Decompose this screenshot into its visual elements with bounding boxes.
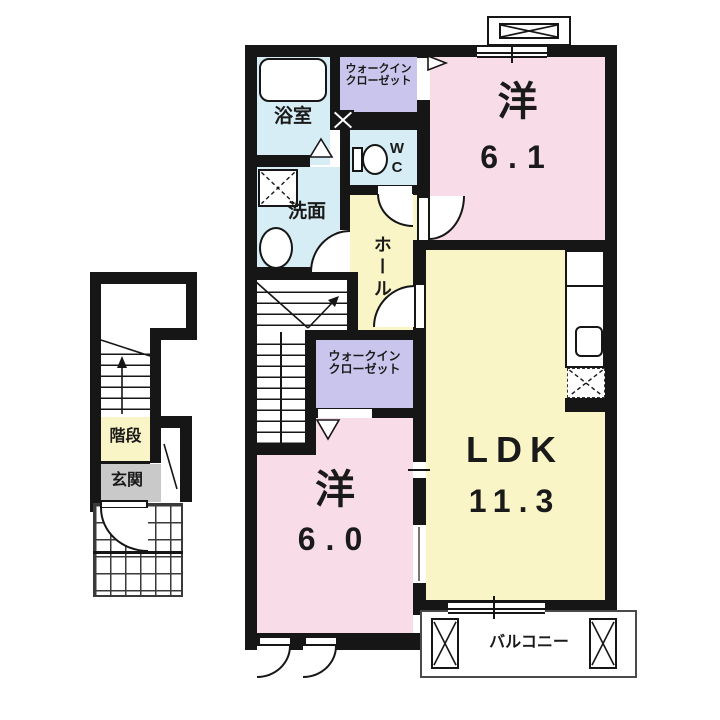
wic-mid-label: ウォークイン クローゼット (316, 350, 413, 376)
wash-basin (259, 227, 293, 269)
wall-wic-mid-top (305, 330, 417, 340)
ldk-balcony-window-tick (493, 596, 495, 619)
wall-bedroom1-bottom (417, 240, 617, 250)
ldk-door-leaf (414, 283, 426, 330)
stairs-direction-arrow (255, 278, 347, 338)
bath-door-icon (308, 137, 334, 159)
stairwell-wall-left (90, 272, 101, 512)
refrigerator-space (567, 368, 605, 398)
ldk-label: LDK (425, 430, 605, 470)
wall-right (605, 45, 617, 615)
wall-hall-stairs (347, 272, 358, 338)
stairwell-wall-top (90, 272, 197, 284)
wic-mid-door-icon (315, 418, 341, 442)
bedroom2-ldk-slider-panel (418, 527, 420, 581)
wc-label: WC (388, 134, 405, 184)
bath-label: 浴室 (260, 107, 326, 128)
bedroom2-window-arc-2 (303, 646, 337, 678)
porch-step-line (93, 551, 183, 554)
wic-top-label-line2: クローゼット (340, 75, 417, 87)
balcony-partition-left (431, 618, 459, 669)
ldk-size: 11.3 (425, 484, 605, 519)
bedroom1-door-leaf (417, 196, 430, 242)
stairwell-upper-area (101, 284, 186, 328)
entrance-unit-door (161, 441, 181, 493)
toilet-bowl (362, 144, 388, 175)
entrance-label: 玄関 (101, 472, 153, 490)
bedroom2-window-arc-1 (257, 646, 291, 678)
wic-top-label-line1: ウォークイン (340, 63, 417, 75)
wic-top-label: ウォークイン クローゼット (340, 63, 417, 87)
kitchen-sink (575, 326, 603, 357)
wic-mid-door-gap (318, 409, 372, 418)
vanity-label: 洗面 (272, 202, 342, 223)
wic-mid-label-line2: クローゼット (316, 363, 413, 376)
bedroom2-label: 洋 (257, 468, 413, 512)
bedroom2-window-leaf-2 (304, 636, 338, 646)
ldk-balcony-window (448, 601, 545, 614)
bedroom2-size: 6.0 (257, 522, 413, 557)
pipe-space-box (332, 110, 354, 130)
bedroom1-label: 洋 (430, 80, 605, 124)
bathtub (259, 58, 327, 102)
stairs-center-line (280, 332, 282, 443)
bedroom1-size: 6.1 (430, 140, 605, 175)
balcony-label: バルコニー (462, 634, 596, 652)
bedroom2-window-leaf-1 (258, 636, 292, 646)
kitchen-counter-divider (565, 285, 605, 287)
wic-top-door-pennant-icon (427, 55, 449, 71)
wc-door-gap (378, 186, 412, 194)
wall-bath-vanity (245, 155, 310, 167)
hall-label: ホール (371, 213, 391, 323)
stairs-label: 階段 (101, 428, 150, 446)
stairwell-wall-right-mid (150, 328, 161, 463)
wall-kitchen-stub (565, 398, 605, 412)
floor-plan: 浴室 ウォークイン クローゼット WC 洗面 ホール 洋 6.1 LDK 11.… (0, 0, 720, 720)
wall-left (245, 45, 257, 650)
wall-stairs-bedroom2 (245, 443, 316, 455)
stairwell-direction-arrow (99, 334, 155, 418)
shutter-box (487, 16, 571, 46)
